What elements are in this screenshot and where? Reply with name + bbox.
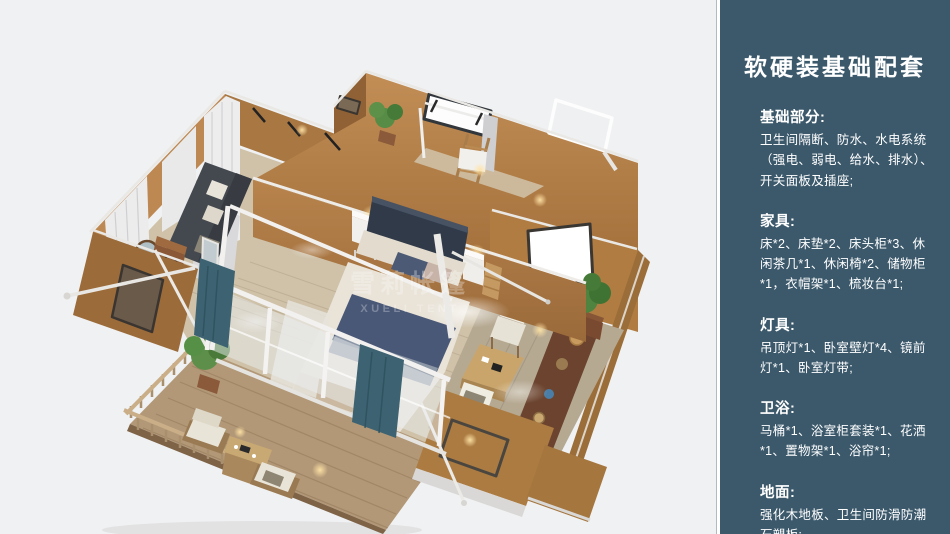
light-pool [492, 380, 548, 404]
spec-heading: 卫浴: [760, 397, 938, 418]
spec-body: 马桶*1、浴室柜套装*1、花洒*1、置物架*1、浴帘*1; [760, 421, 938, 462]
teal-curtain-right [352, 344, 404, 438]
watermark-en: XUELI TENT [360, 303, 459, 315]
spec-heading: 家具: [760, 210, 938, 231]
spec-panel: 软硬装基础配套 基础部分: 卫生间隔断、防水、水电系统（强电、弱电、给水、排水）… [720, 0, 950, 534]
render-area: 雪莉帐篷 XUELI TENT [0, 0, 716, 534]
spec-heading: 灯具: [760, 314, 938, 335]
spec-body: 吊顶灯*1、卧室壁灯*4、镜前灯*1、卧室灯带; [760, 338, 938, 379]
panel-title: 软硬装基础配套 [744, 48, 938, 82]
spec-section-basics: 基础部分: 卫生间隔断、防水、水电系统（强电、弱电、给水、排水）、开关面板及插座… [760, 106, 938, 191]
spec-section-furniture: 家具: 床*2、床垫*2、床头柜*3、休闲茶几*1、休闲椅*2、储物柜*1，衣帽… [760, 210, 938, 295]
teal-curtain-left [194, 258, 235, 348]
watermark: 雪莉帐篷 XUELI TENT [350, 269, 470, 315]
spec-body: 强化木地板、卫生间防滑防潮石塑板; [760, 505, 938, 534]
spec-section-flooring: 地面: 强化木地板、卫生间防滑防潮石塑板; [760, 481, 938, 534]
spec-section-lighting: 灯具: 吊顶灯*1、卧室壁灯*4、镜前灯*1、卧室灯带; [760, 314, 938, 379]
floorplan-render: 雪莉帐篷 XUELI TENT [0, 0, 716, 534]
spec-section-bathroom: 卫浴: 马桶*1、浴室柜套装*1、花洒*1、置物架*1、浴帘*1; [760, 397, 938, 462]
spec-heading: 基础部分: [760, 106, 938, 127]
light-pool [290, 241, 334, 259]
spec-heading: 地面: [760, 481, 938, 502]
watermark-cn: 雪莉帐篷 [350, 269, 470, 298]
slide: 雪莉帐篷 XUELI TENT 软硬装基础配套 基础部分: 卫生间隔断、防水、水… [0, 0, 950, 534]
spec-body: 卫生间隔断、防水、水电系统（强电、弱电、给水、排水）、开关面板及插座; [760, 130, 938, 191]
spec-body: 床*2、床垫*2、床头柜*3、休闲茶几*1、休闲椅*2、储物柜*1，衣帽架*1、… [760, 234, 938, 295]
